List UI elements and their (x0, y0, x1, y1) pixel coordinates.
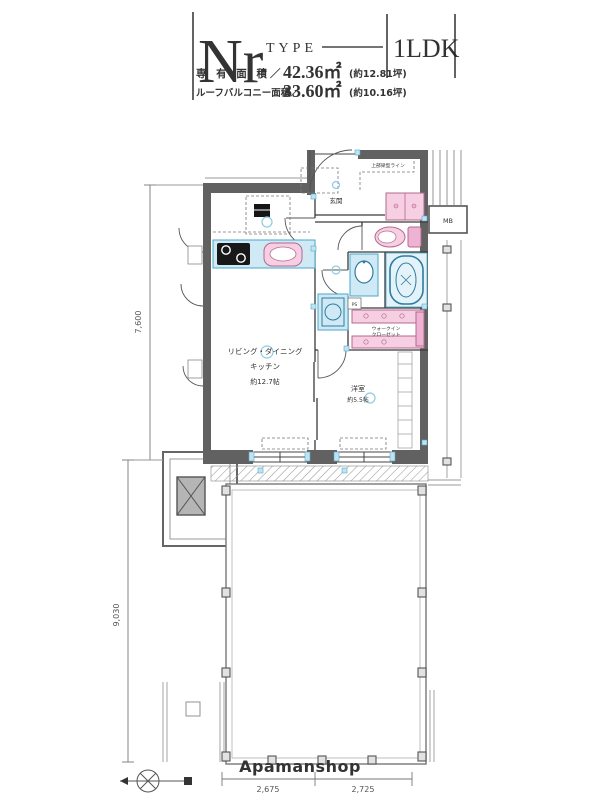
bedroom-size-label: 約5.5帖 (347, 396, 369, 404)
dim-lower-height: 9,030 (112, 604, 121, 627)
pipe-space-box: PS (348, 298, 361, 309)
plan-type-word: TYPE (266, 41, 317, 56)
ldk-label: リビング・ダイニング (228, 346, 303, 356)
exterior-small-box (186, 702, 200, 716)
ldk-label2: キッチン (250, 362, 280, 371)
shoe-cabinet (386, 193, 424, 220)
dim-bottom-right: 2,725 (352, 785, 375, 794)
wic-label2: クローゼット (372, 331, 401, 338)
toilet-icon (375, 227, 421, 247)
area-value: 42.36㎡ (283, 61, 342, 82)
plan-layout: 1LDK (393, 34, 460, 63)
pipe-space-label: PS (352, 302, 358, 308)
bathroom (386, 253, 427, 307)
compass-icon (120, 770, 192, 792)
refrigerator-icon (254, 204, 270, 217)
gutter-strip (211, 466, 428, 481)
washroom (350, 254, 378, 296)
wash-basin-icon (355, 261, 373, 283)
plan-type-code: Nr (198, 28, 264, 96)
title-block: Nr TYPE 1LDK 専 有 面 積／ 42.36㎡ (約12.81坪) ル… (193, 12, 460, 101)
stove-icon (217, 243, 250, 265)
area-tsubo: (約12.81坪) (349, 68, 407, 80)
dim-upper-height: 7,600 (134, 311, 143, 334)
entrance-label: 玄関 (330, 196, 343, 205)
area-value: 33.60㎡ (283, 80, 342, 101)
area-label: 専 有 面 積／ (196, 67, 283, 80)
ldk-size-label: 約12.7帖 (250, 377, 280, 386)
washer-space (318, 294, 348, 330)
meter-box-label: MB (443, 217, 453, 225)
duct-strip (398, 352, 412, 448)
branding-watermark: Apamanshop (239, 757, 361, 776)
adjacent-structure-right (430, 690, 434, 762)
wic-label: ウォークイン (372, 325, 401, 332)
kitchen-counter (213, 240, 315, 268)
floorplan-drawing: Nr TYPE 1LDK 専 有 面 積／ 42.36㎡ (約12.81坪) ル… (0, 0, 600, 800)
area-tsubo: (約10.16坪) (349, 87, 407, 99)
bedroom-label: 洋室 (351, 384, 365, 393)
adjacent-structure-left (163, 682, 224, 762)
roof-balcony (222, 484, 426, 764)
floorplan-page: Nr TYPE 1LDK 専 有 面 積／ 42.36㎡ (約12.81坪) ル… (0, 0, 600, 800)
dim-bottom-left: 2,675 (257, 785, 280, 794)
beam-note-label: 上部梁型ライン (371, 162, 405, 169)
